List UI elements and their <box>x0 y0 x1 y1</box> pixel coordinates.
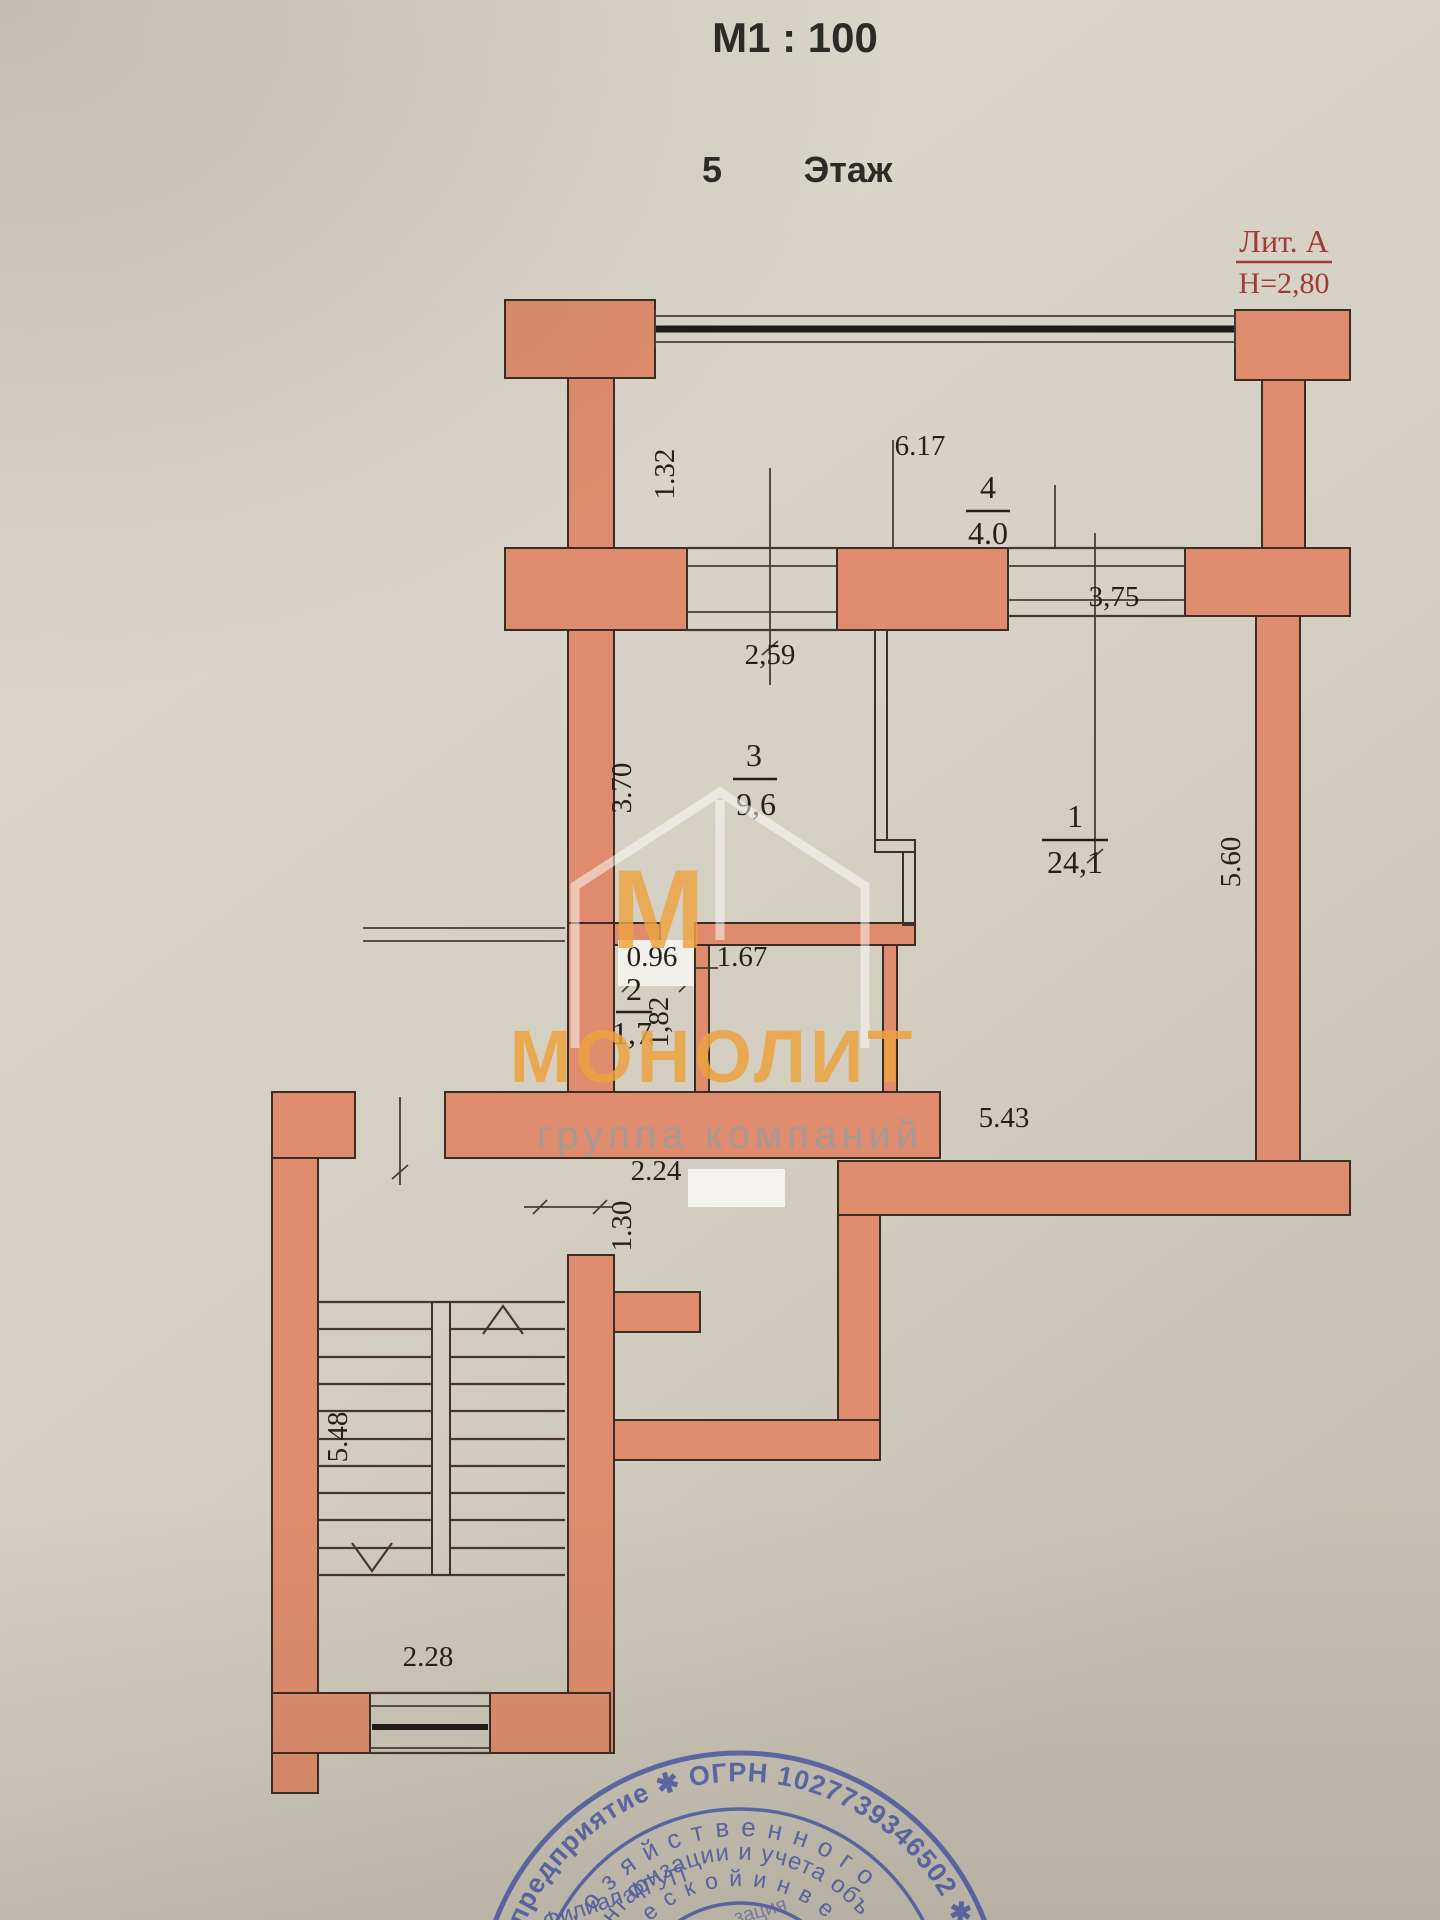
wall-east <box>1256 616 1300 1161</box>
dim-stairwell-depth: 5.48 <box>322 1412 354 1463</box>
watermark-tagline: группа компаний <box>537 1113 923 1157</box>
room3-number: 3 <box>746 737 762 773</box>
room1-number: 1 <box>1067 798 1083 834</box>
wall-balcony-right-cap <box>1235 310 1350 380</box>
room2-number: 2 <box>626 971 642 1007</box>
wall-vestibule-south <box>610 1420 880 1460</box>
wall-landing-north-left <box>272 1092 355 1158</box>
liter-label: Лит. А <box>1239 223 1329 259</box>
watermark-monogram: М <box>611 847 704 972</box>
ceiling-height-label: Н=2,80 <box>1238 267 1329 300</box>
dim-room3-depth: 3.70 <box>606 763 638 814</box>
dim-corridor-depth: 1.30 <box>606 1201 638 1252</box>
wall-corridor-south-stub <box>610 1292 700 1332</box>
wall-room1-south <box>838 1161 1350 1215</box>
watermark-brand: МОНОЛИТ <box>510 1015 917 1098</box>
dim-window-right: 3,75 <box>1089 581 1140 613</box>
photo-bottom-shade <box>0 1500 1440 1920</box>
room4-number: 4 <box>980 469 996 505</box>
wall-balcony-right-stem <box>1262 380 1305 550</box>
liter-block: Лит. А Н=2,80 <box>1236 223 1332 300</box>
wall-junction-right <box>1185 548 1350 616</box>
dim-room1-depth: 5.60 <box>1215 837 1247 888</box>
correction-patch-corridor <box>688 1169 785 1207</box>
room1-area: 24,1 <box>1047 844 1103 880</box>
floorplan-svg: М1 : 100 5 Этаж Лит. А Н=2,80 <box>0 0 1440 1920</box>
dim-balcony-width: 6.17 <box>895 430 946 462</box>
floorplan-photo: М1 : 100 5 Этаж Лит. А Н=2,80 <box>0 0 1440 1920</box>
dim-corridor-width: 2.24 <box>631 1155 682 1187</box>
photo-corner-shade <box>0 0 900 700</box>
dim-room1-width: 5.43 <box>979 1102 1030 1134</box>
room4-area: 4.0 <box>968 515 1008 551</box>
dim-hall-nook: 1.67 <box>717 941 768 973</box>
